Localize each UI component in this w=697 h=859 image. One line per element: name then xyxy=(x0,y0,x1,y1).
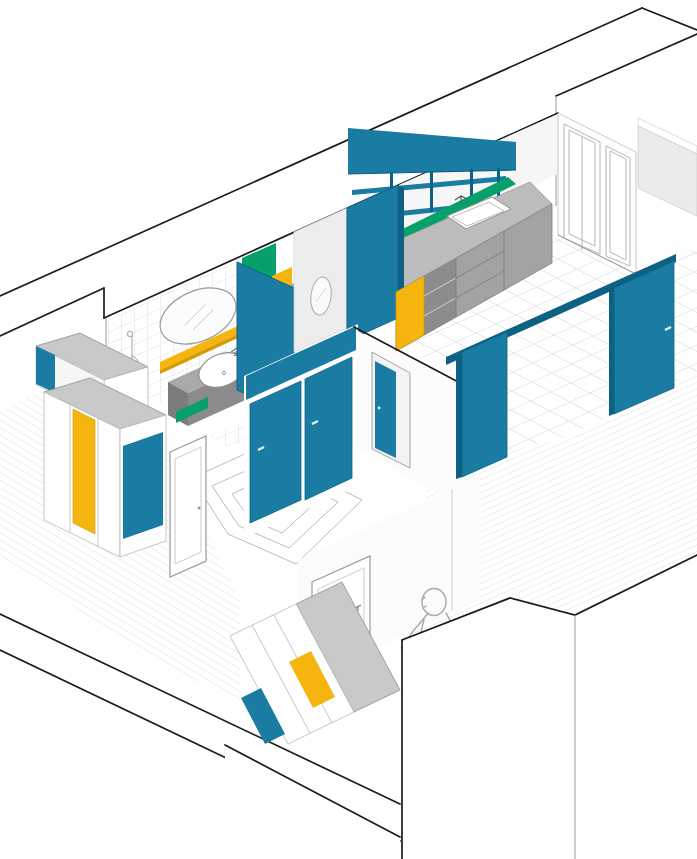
sliding-panel-right xyxy=(614,261,674,414)
sliding-panel-right-edge xyxy=(609,288,614,416)
wardrobe1-teal-end-panel xyxy=(123,432,163,539)
doorway-door-handle xyxy=(378,407,381,410)
kitchen-tall-teal-unit xyxy=(347,185,398,341)
wardrobe1-yellow-door xyxy=(73,409,95,534)
bedroom1-facade-inner-edge xyxy=(0,288,104,336)
bedroom1-door-knob xyxy=(197,506,200,509)
end-wall-top-edge xyxy=(556,34,697,96)
sliding-panel-left-edge xyxy=(456,352,462,479)
bedroom1-door xyxy=(170,436,206,577)
hall-teal-door-right xyxy=(305,357,352,500)
hall-teal-door-left xyxy=(250,381,301,523)
bedroom1-wardrobe xyxy=(36,333,166,557)
facade-corner-edge xyxy=(642,8,697,30)
drawing-canvas xyxy=(0,0,697,859)
sliding-panel-left xyxy=(462,332,507,477)
upper-shelf-slab xyxy=(348,128,516,174)
doorway-teal-door xyxy=(375,361,396,458)
axonometric-apartment-drawing xyxy=(0,0,697,859)
